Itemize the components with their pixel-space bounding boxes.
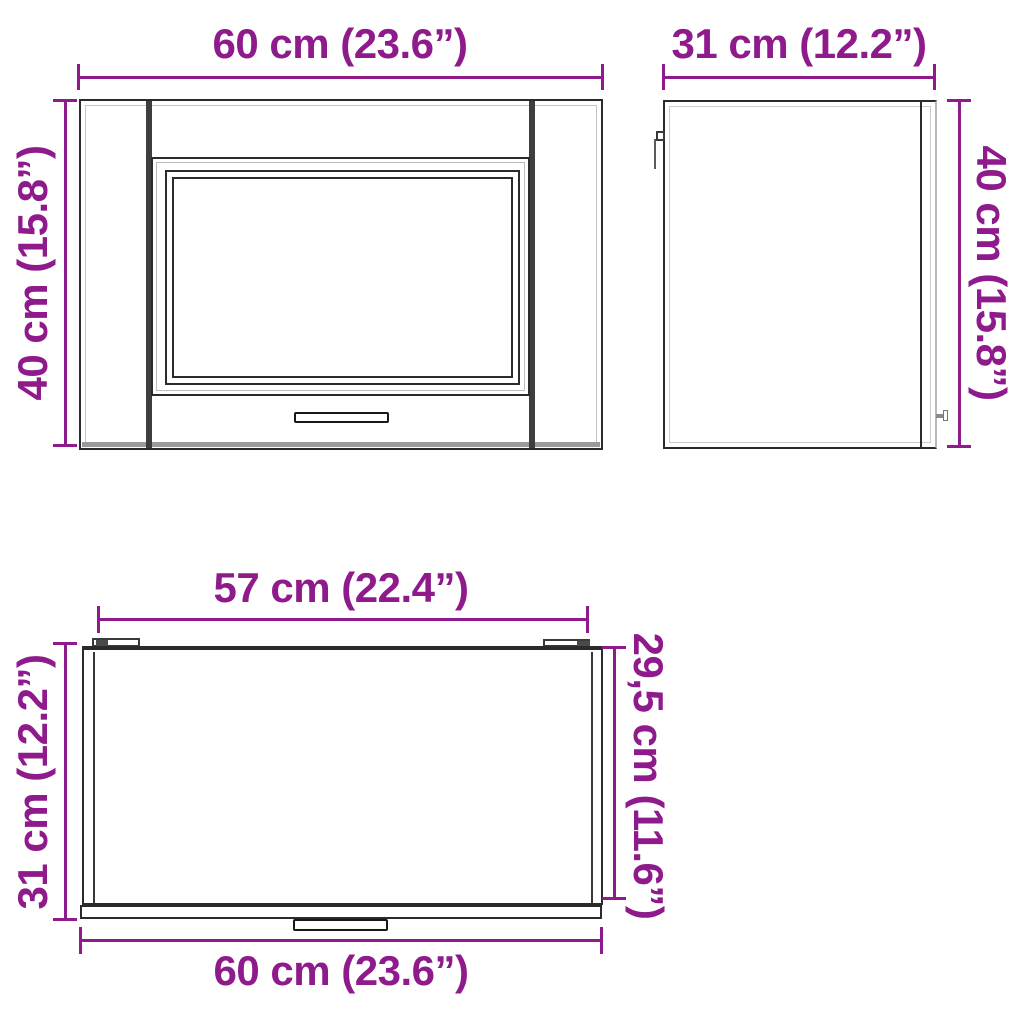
dimension-tick: [53, 642, 77, 645]
top-total-depth-dimension-label: 31 cm (12.2”): [12, 655, 54, 910]
dimension-line: [80, 939, 602, 942]
dimension-tick: [586, 606, 589, 633]
dimension-line: [98, 618, 588, 621]
dimension-diagram: 60 cm (23.6”) 40 cm (15.8”) 31 cm (12.2”…: [0, 0, 1024, 1024]
top-door-strip: [80, 905, 602, 919]
top-door-handle: [293, 919, 388, 931]
dimension-tick: [97, 606, 100, 633]
dimension-tick: [53, 918, 77, 921]
top-body-depth-dimension-label: 29,5 cm (11.6”): [627, 633, 669, 920]
dimension-tick: [79, 927, 82, 954]
dimension-tick: [600, 927, 603, 954]
top-view: 57 cm (22.4”) 31 cm (12.2”) 29,5 cm (11.…: [0, 0, 1024, 1024]
top-hinge-span-dimension-label: 57 cm (22.4”): [214, 567, 469, 609]
top-left-panel-line: [93, 652, 95, 903]
dimension-tick: [602, 897, 626, 900]
top-width-dimension-label: 60 cm (23.6”): [214, 950, 469, 992]
dimension-tick: [602, 646, 626, 649]
dimension-line: [613, 648, 616, 900]
top-cabinet-outline: [82, 646, 603, 905]
top-right-panel-line: [591, 652, 593, 903]
dimension-line: [64, 643, 67, 921]
